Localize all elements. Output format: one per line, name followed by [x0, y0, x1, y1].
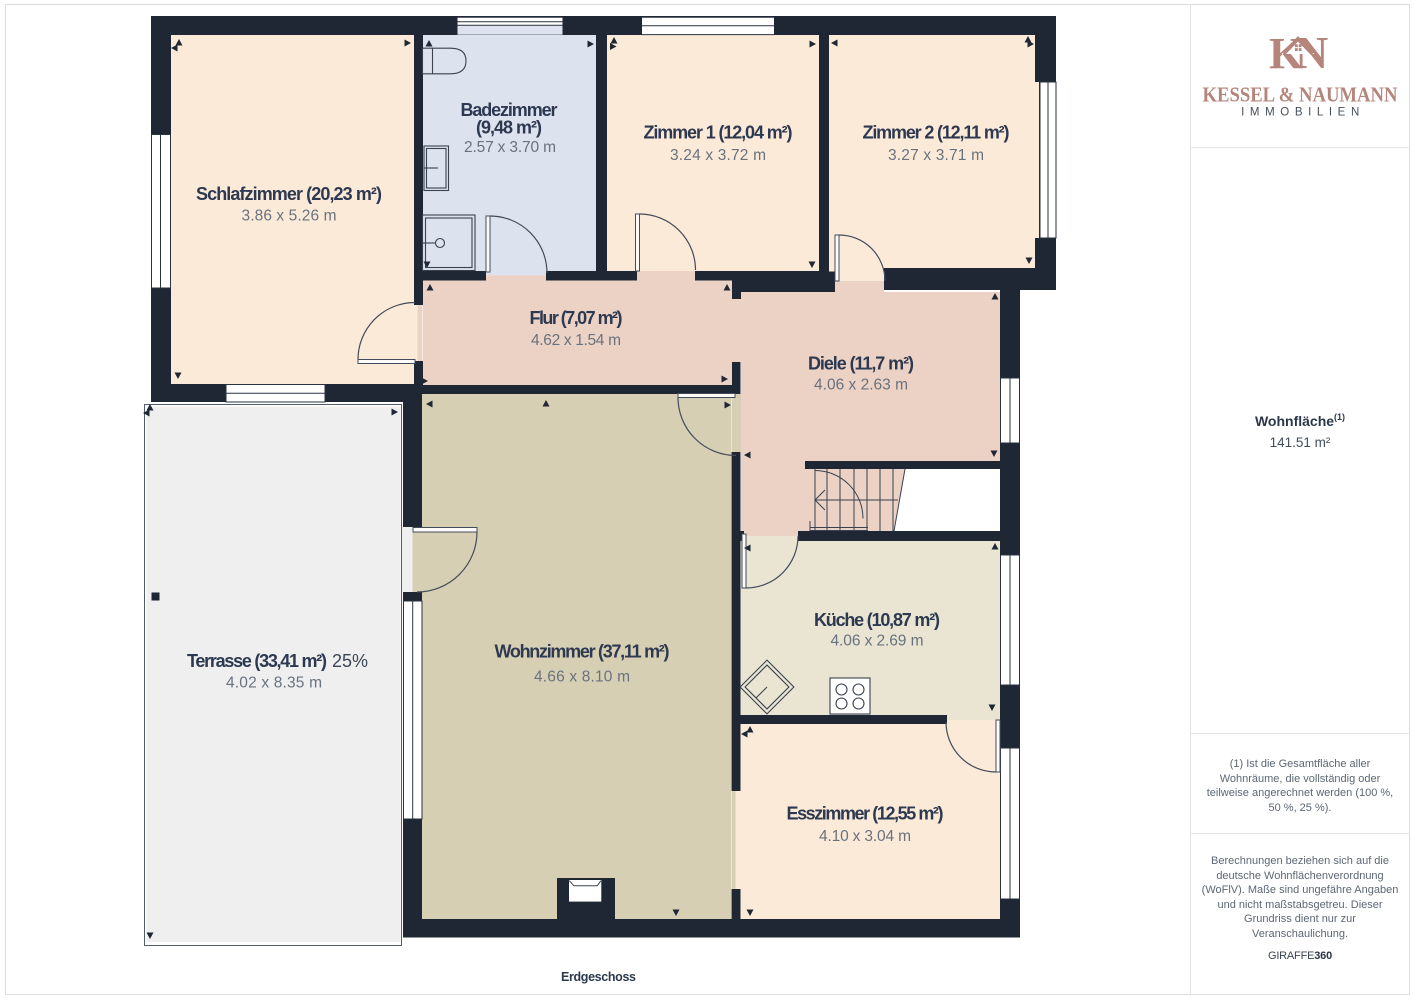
- svg-text:3.86 x 5.26 m: 3.86 x 5.26 m: [242, 208, 337, 225]
- svg-text:4.10 x 3.04 m: 4.10 x 3.04 m: [819, 828, 911, 845]
- svg-text:4.06 x 2.69 m: 4.06 x 2.69 m: [831, 633, 924, 650]
- svg-text:Wohnzimmer (37,11 m²): Wohnzimmer (37,11 m²): [495, 642, 670, 662]
- svg-text:4.66 x 8.10 m: 4.66 x 8.10 m: [534, 669, 630, 686]
- svg-text:Küche (10,87 m²): Küche (10,87 m²): [814, 610, 940, 630]
- svg-text:KESSEL & NAUMANN: KESSEL & NAUMANN: [1203, 83, 1398, 107]
- svg-text:Schlafzimmer (20,23 m²): Schlafzimmer (20,23 m²): [196, 184, 382, 204]
- svg-text:3.27 x 3.71 m: 3.27 x 3.71 m: [888, 147, 984, 164]
- svg-text:2.57 x 3.70 m: 2.57 x 3.70 m: [464, 139, 556, 156]
- svg-text:Diele (11,7 m²): Diele (11,7 m²): [808, 354, 914, 374]
- svg-text:Terrasse (33,41 m²): Terrasse (33,41 m²): [187, 651, 327, 671]
- svg-text:Esszimmer (12,55 m²): Esszimmer (12,55 m²): [787, 804, 944, 824]
- svg-text:Flur (7,07 m²): Flur (7,07 m²): [530, 308, 623, 328]
- svg-text:Erdgeschoss: Erdgeschoss: [561, 970, 636, 984]
- svg-text:25%: 25%: [332, 651, 368, 671]
- svg-text:IMMOBILIEN: IMMOBILIEN: [1241, 107, 1365, 119]
- svg-text:Zimmer 1 (12,04 m²): Zimmer 1 (12,04 m²): [644, 123, 793, 143]
- svg-text:Zimmer 2 (12,11 m²): Zimmer 2 (12,11 m²): [863, 123, 1010, 143]
- svg-text:4.62 x 1.54 m: 4.62 x 1.54 m: [531, 332, 621, 349]
- svg-text:(9,48 m²): (9,48 m²): [476, 118, 542, 138]
- svg-text:4.02 x 8.35 m: 4.02 x 8.35 m: [226, 675, 322, 692]
- svg-text:3.24 x 3.72 m: 3.24 x 3.72 m: [670, 147, 766, 164]
- svg-text:4.06 x 2.63 m: 4.06 x 2.63 m: [814, 377, 908, 394]
